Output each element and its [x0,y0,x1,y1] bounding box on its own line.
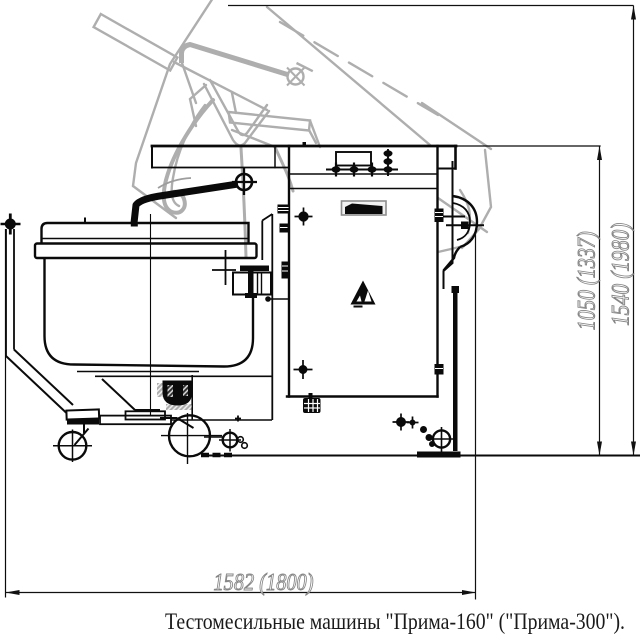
svg-text:1050 (1337): 1050 (1337) [574,231,601,330]
svg-text:1582 (1800): 1582 (1800) [214,570,314,596]
svg-text:Тестомесильные машины "Прима-1: Тестомесильные машины "Прима-160" ("Прим… [165,609,625,634]
svg-text:1540 (1980): 1540 (1980) [608,223,635,326]
